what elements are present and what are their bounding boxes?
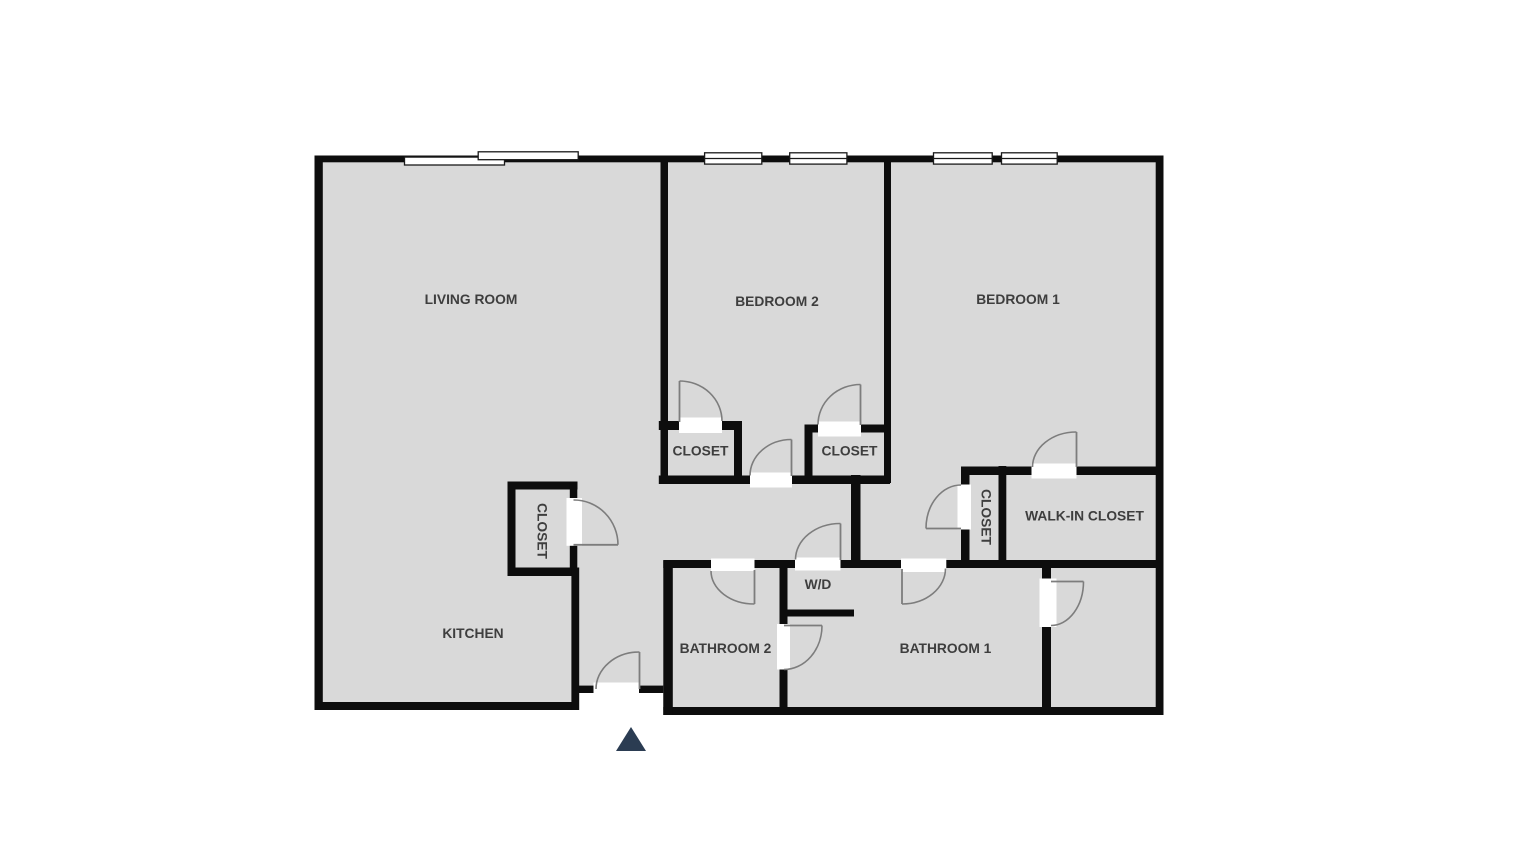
svg-text:BEDROOM 2: BEDROOM 2	[735, 294, 819, 309]
svg-text:CLOSET: CLOSET	[822, 444, 879, 459]
svg-text:BEDROOM 1: BEDROOM 1	[976, 292, 1060, 307]
svg-text:CLOSET: CLOSET	[673, 444, 730, 459]
svg-text:LIVING ROOM: LIVING ROOM	[425, 292, 518, 307]
svg-text:CLOSET: CLOSET	[535, 503, 550, 560]
svg-text:BATHROOM 1: BATHROOM 1	[900, 641, 992, 656]
svg-text:WALK-IN CLOSET: WALK-IN CLOSET	[1025, 509, 1144, 524]
svg-text:CLOSET: CLOSET	[979, 489, 994, 546]
svg-text:KITCHEN: KITCHEN	[442, 626, 503, 641]
svg-text:W/D: W/D	[805, 577, 832, 592]
svg-text:BATHROOM 2: BATHROOM 2	[680, 641, 772, 656]
